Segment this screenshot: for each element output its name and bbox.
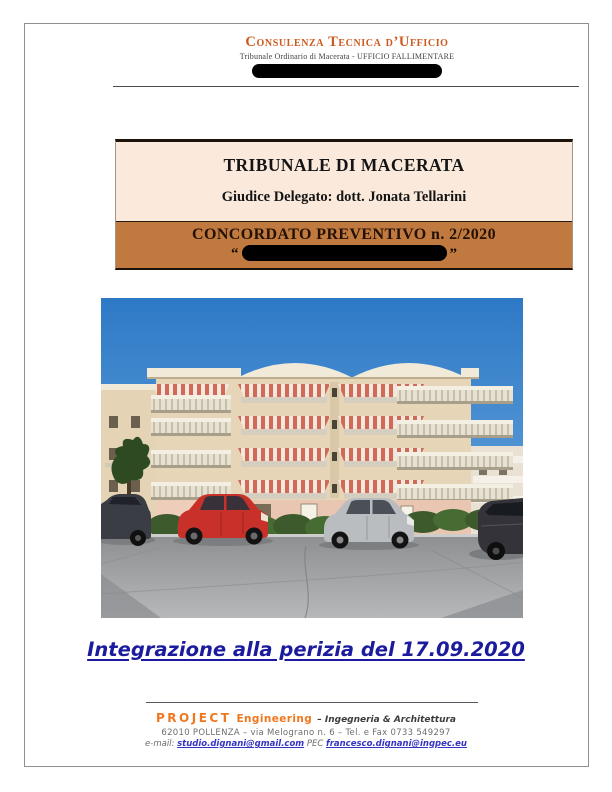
pec-label: PEC — [307, 739, 323, 749]
footer-address: 62010 POLLENZA – via Melograno n. 6 – Te… — [24, 728, 588, 738]
redaction-bar — [242, 245, 447, 261]
footer-brand: PROJECT — [156, 711, 231, 725]
close-quote: ” — [450, 246, 458, 262]
header-title: Consulenza Tecnica d’Ufficio — [113, 34, 581, 51]
footer-tagline: – Ingegneria & Architettura — [317, 715, 456, 725]
procedure-title: CONCORDATO PREVENTIVO n. 2/2020 — [116, 226, 572, 244]
property-photo-illustration — [101, 298, 523, 618]
integration-heading: Integrazione alla perizia del 17.09.2020 — [24, 638, 588, 661]
footer: PROJECT Engineering – Ingegneria & Archi… — [24, 707, 588, 749]
email-link[interactable]: studio.dignani@gmail.com — [177, 739, 304, 749]
header-subtitle: Tribunale Ordinario di Macerata - UFFICI… — [113, 52, 581, 61]
court-name: TRIBUNALE DI MACERATA — [116, 155, 572, 176]
footer-brand-line: PROJECT Engineering – Ingegneria & Archi… — [24, 707, 588, 726]
property-photo — [101, 298, 523, 618]
judge-line: Giudice Delegato: dott. Jonata Tellarini — [116, 189, 572, 206]
procedure-banner: CONCORDATO PREVENTIVO n. 2/2020 “” — [116, 221, 572, 268]
open-quote: “ — [231, 246, 239, 262]
header-divider — [113, 86, 579, 87]
email-label: e-mail: — [145, 739, 174, 749]
footer-divider — [146, 702, 478, 703]
redaction-bar — [252, 64, 442, 78]
debtor-name-row: “” — [116, 245, 572, 263]
road — [101, 534, 523, 618]
court-title-box: TRIBUNALE DI MACERATA Giudice Delegato: … — [115, 139, 573, 270]
integration-heading-text: Integrazione alla perizia del 17.09.2020 — [87, 638, 525, 661]
footer-brand-suffix: Engineering — [236, 713, 312, 725]
document-page: Consulenza Tecnica d’Ufficio Tribunale O… — [0, 0, 612, 792]
pec-link[interactable]: francesco.dignani@ingpec.eu — [326, 739, 467, 749]
footer-contact-line: e-mail: studio.dignani@gmail.com PEC fra… — [24, 739, 588, 749]
report-header: Consulenza Tecnica d’Ufficio Tribunale O… — [113, 34, 581, 78]
